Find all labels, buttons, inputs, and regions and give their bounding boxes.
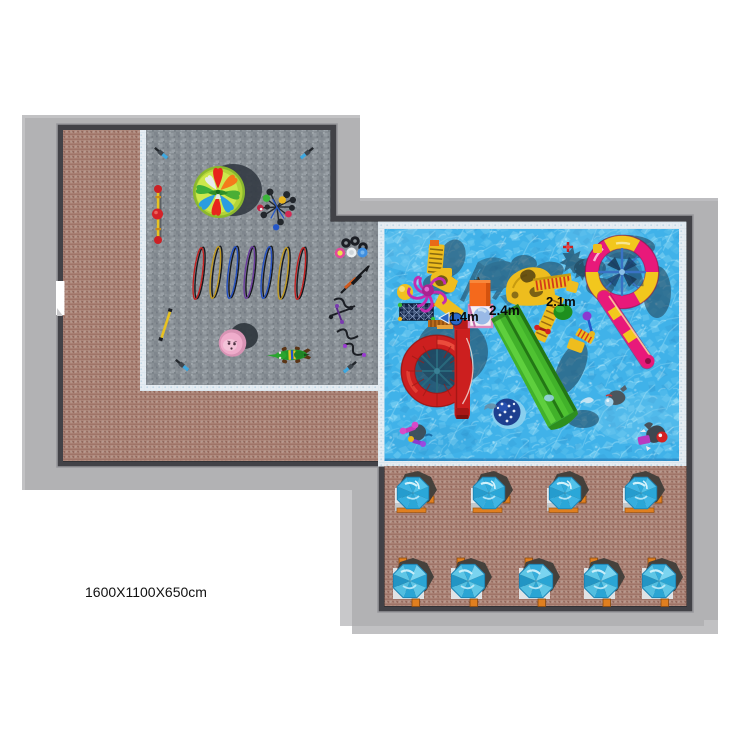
svg-text:2.4m: 2.4m [489,303,520,318]
svg-text:1600X1100X650cm: 1600X1100X650cm [85,584,207,600]
svg-text:1.4m: 1.4m [449,309,479,324]
svg-text:2.1m: 2.1m [546,294,576,309]
